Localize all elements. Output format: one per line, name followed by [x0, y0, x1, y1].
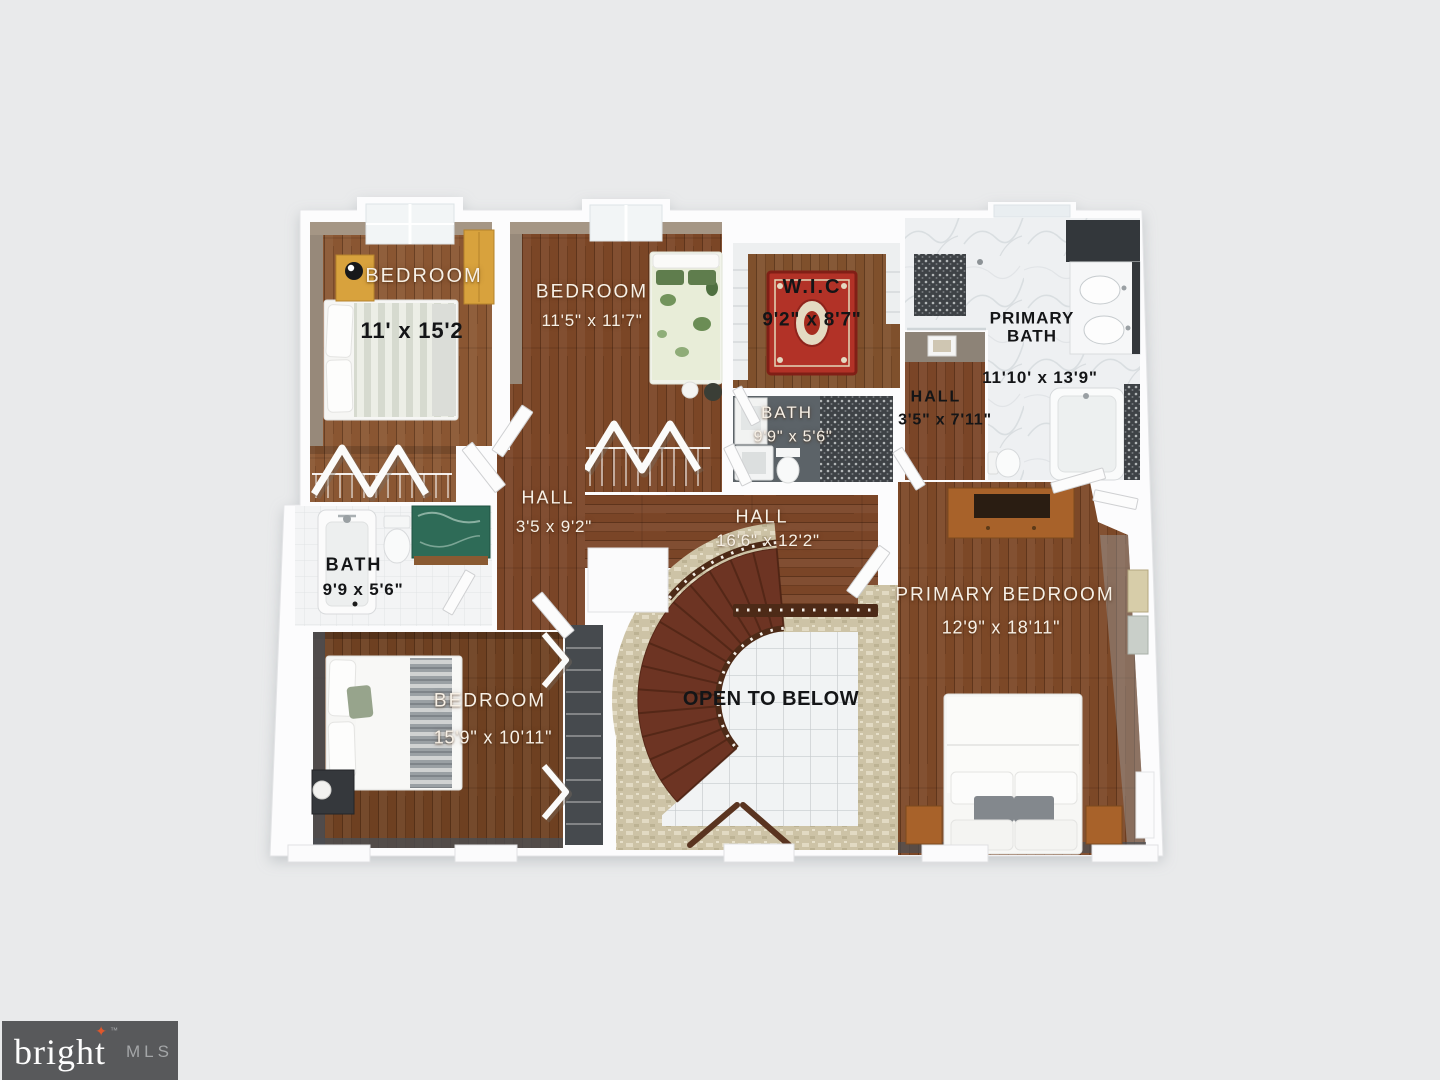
sparkle-icon: ✦ [95, 1025, 108, 1039]
toilet-bath-west [384, 516, 410, 563]
nightstand-bedroom1 [336, 255, 374, 301]
pouf-bedroom2 [704, 383, 722, 401]
window-primary-bath [994, 205, 1070, 217]
nightstand-primary-left [906, 806, 942, 844]
dresser-primary-bedroom [948, 488, 1074, 538]
brand-logo: bright ✦ ™ MLS [2, 1021, 178, 1080]
room-bath-middle [733, 396, 893, 483]
nightstand-bedroom3 [312, 770, 354, 814]
floor-plan-rendering [0, 0, 1440, 1080]
bed-bedroom1 [324, 300, 458, 420]
brand-suffix: MLS [126, 1042, 173, 1062]
toilet-bath-middle [776, 448, 800, 483]
bed-bedroom2 [650, 252, 722, 384]
nightstand-primary-right [1086, 806, 1122, 844]
bed-primary-bedroom [944, 694, 1082, 854]
stair-half-wall [588, 548, 668, 612]
room-bath-west [295, 506, 492, 626]
wall-art-primary-2 [1128, 616, 1148, 654]
wall-art-primary-1 [1128, 570, 1148, 612]
trademark-symbol: ™ [110, 1027, 119, 1035]
room-bedroom3 [312, 625, 603, 848]
room-hall-upper [905, 332, 985, 480]
window-primary-right [1136, 772, 1154, 838]
room-wic [733, 243, 900, 388]
room-primary-bedroom [898, 482, 1154, 855]
landing-railing [733, 604, 878, 617]
side-table-bedroom2 [682, 382, 698, 398]
brand-name: bright ✦ ™ [14, 1034, 106, 1070]
rug-wic [768, 272, 856, 374]
closet-bedroom1 [310, 446, 456, 502]
toilet-primary-bath [988, 449, 1020, 477]
tub-bath-west [318, 510, 376, 614]
room-bedroom2 [510, 205, 722, 492]
tub-primary-bath [1050, 388, 1124, 480]
vanity-bath-west [412, 506, 490, 565]
floor-plan-image: BEDROOM 11' x 15'2 BEDROOM 11'5" x 11'7"… [0, 0, 1440, 1080]
vanity-primary-bath [1066, 220, 1140, 354]
